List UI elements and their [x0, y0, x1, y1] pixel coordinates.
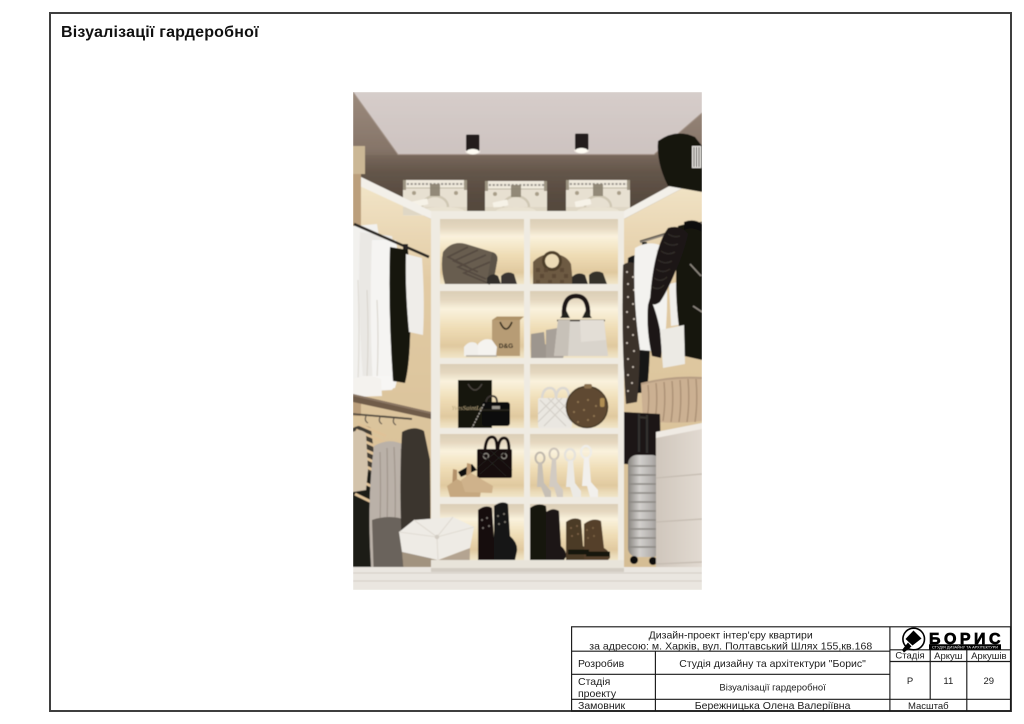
- svg-text:проекту: проекту: [578, 688, 617, 700]
- svg-text:Аркуш: Аркуш: [934, 651, 962, 662]
- svg-text:Р: Р: [907, 676, 913, 687]
- svg-text:Розробив: Розробив: [578, 658, 625, 670]
- svg-text:Масштаб: Масштаб: [908, 701, 949, 712]
- svg-text:Стадія: Стадія: [578, 676, 610, 688]
- svg-text:Стадія: Стадія: [895, 650, 924, 661]
- svg-text:D&G: D&G: [499, 343, 513, 350]
- svg-text:СТУДІЯ ДИЗАЙНУ ТА АРХІТЕКТУРИ: СТУДІЯ ДИЗАЙНУ ТА АРХІТЕКТУРИ: [932, 646, 998, 650]
- svg-text:Замовник: Замовник: [578, 700, 625, 712]
- svg-text:29: 29: [984, 676, 995, 687]
- svg-text:Студія дизайну та архітектури: Студія дизайну та архітектури "Борис": [679, 658, 866, 670]
- svg-text:Візуалізації гардеробної: Візуалізації гардеробної: [719, 683, 826, 694]
- svg-text:11: 11: [943, 676, 953, 687]
- svg-text:за адресою: м. Харків, вул. По: за адресою: м. Харків, вул. Полтавський …: [589, 640, 872, 652]
- svg-text:Аркушів: Аркушів: [971, 651, 1006, 662]
- svg-text:Бережницька Олена Валеріївна: Бережницька Олена Валеріївна: [695, 700, 851, 712]
